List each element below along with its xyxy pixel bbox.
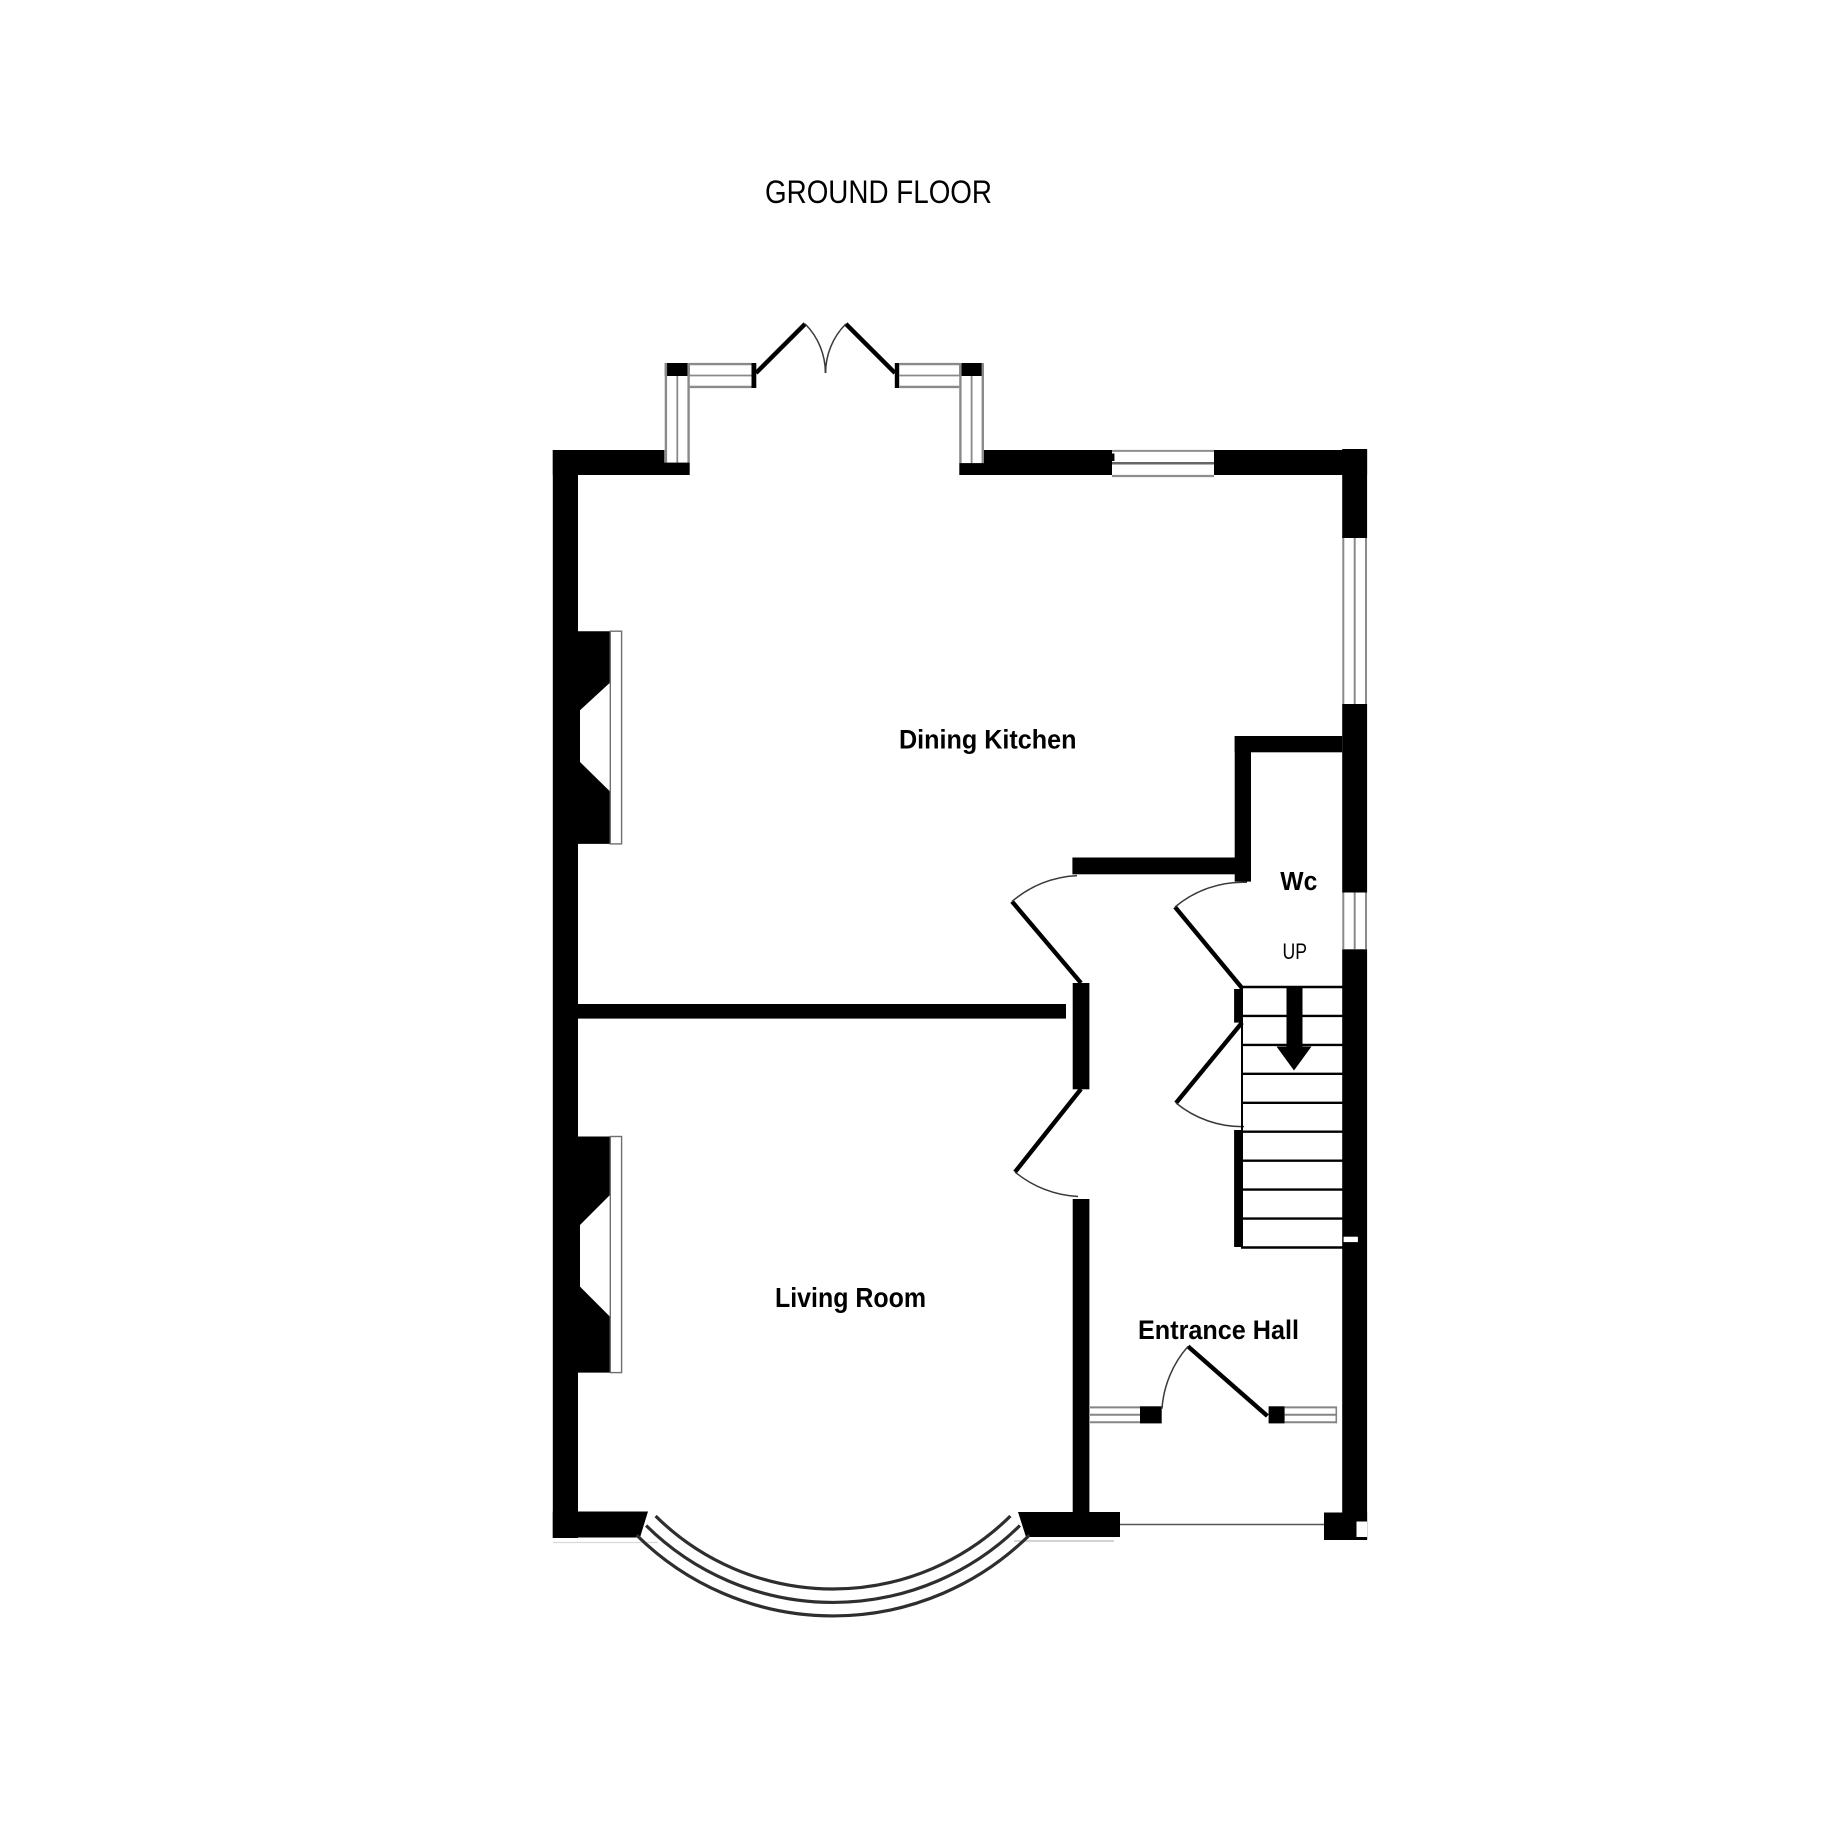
svg-text:Living Room: Living Room xyxy=(775,1282,926,1313)
svg-text:Entrance Hall: Entrance Hall xyxy=(1138,1315,1299,1345)
svg-text:GROUND FLOOR: GROUND FLOOR xyxy=(765,174,992,210)
svg-text:UP: UP xyxy=(1283,939,1308,964)
svg-text:Dining Kitchen: Dining Kitchen xyxy=(899,725,1077,755)
svg-text:Wc: Wc xyxy=(1280,868,1317,896)
